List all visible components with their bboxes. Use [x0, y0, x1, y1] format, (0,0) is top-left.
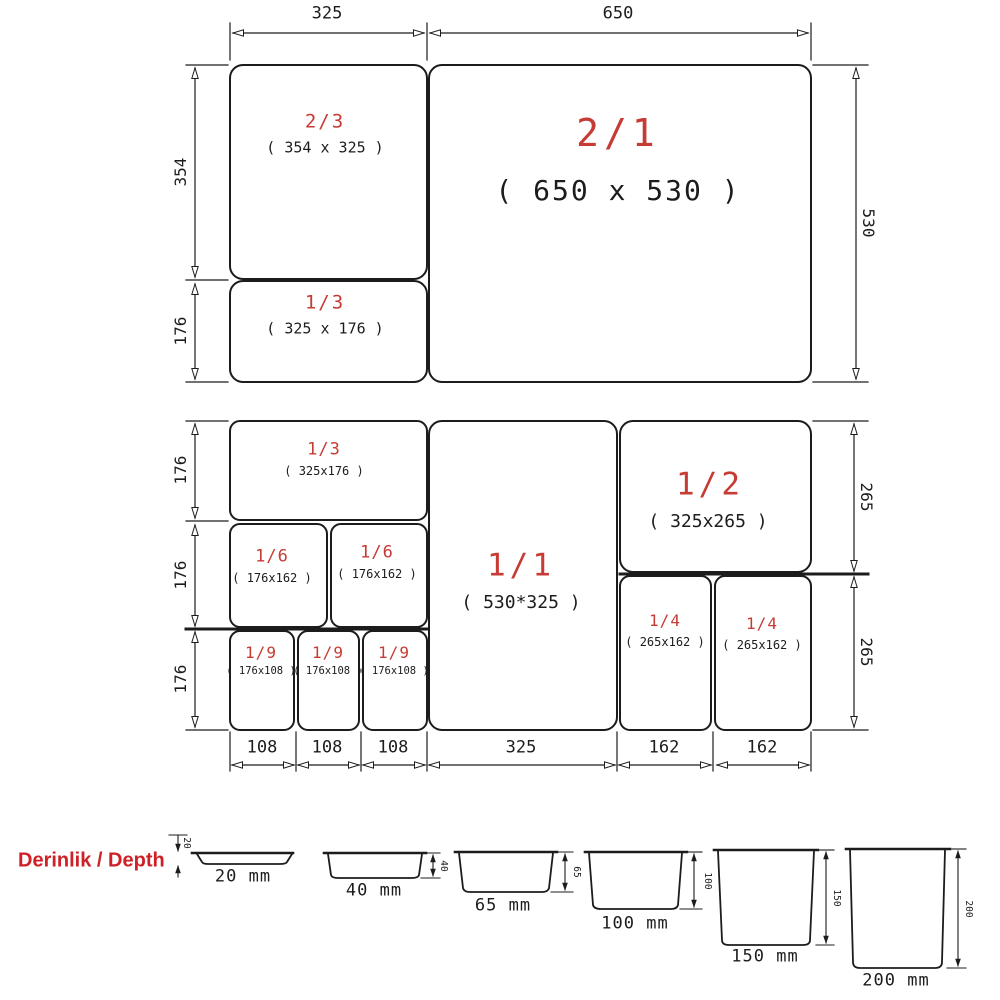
dim-label-top-325: 325	[312, 6, 343, 23]
depth-label-65mm: 65 mm	[475, 898, 531, 915]
pan-size-1-9-b: ( 176x108 )	[293, 666, 363, 677]
dim-label-bottom-108-b: 108	[312, 740, 343, 757]
pan-label-1-2: 1/2	[676, 470, 744, 501]
pan-size-1-9-a: ( 176x108 )	[226, 666, 296, 677]
pan-label-2-1: 2/1	[576, 114, 660, 152]
pan-label-1-3-bottom: 1/3	[307, 442, 341, 459]
depth-dim-200: 200	[963, 900, 973, 917]
depth-pan-200-body	[850, 850, 945, 968]
pan-size-1-9-c: ( 176x108 )	[359, 666, 429, 677]
pan-size-1-1: ( 530*325 )	[461, 594, 580, 612]
pan-label-1-3-top: 1/3	[305, 294, 345, 313]
dim-label-bottom-162-a: 162	[649, 740, 680, 757]
pan-label-1-1: 1/1	[487, 551, 555, 582]
dim-label-left-176-row2: 176	[173, 561, 189, 590]
dim-label-left-176: 176	[173, 317, 189, 346]
depth-label-100mm: 100 mm	[601, 916, 668, 933]
dim-label-left-176-row1: 176	[173, 456, 189, 485]
pan-label-1-9-b: 1/9	[312, 645, 344, 661]
dim-label-left-354: 354	[173, 158, 189, 187]
dim-label-bottom-325: 325	[506, 740, 537, 757]
pan-size-1-6-b: ( 176x162 )	[337, 568, 416, 580]
dim-label-bottom-162-b: 162	[747, 740, 778, 757]
pan-label-1-9-c: 1/9	[378, 645, 410, 661]
dim-label-bottom-108-c: 108	[378, 740, 409, 757]
depth-section-title: Derinlik / Depth	[18, 850, 165, 873]
depth-pan-40-body	[328, 854, 422, 878]
depth-dim-65: 65	[571, 866, 581, 877]
depth-label-150mm: 150 mm	[731, 949, 798, 966]
dim-label-left-176-row3: 176	[173, 665, 189, 694]
depth-pan-100-body	[589, 853, 682, 909]
depth-label-200mm: 200 mm	[862, 973, 929, 990]
pan-outline-2-3	[230, 65, 427, 279]
depth-dim-40: 40	[438, 860, 448, 871]
pan-size-1-3-bottom: ( 325x176 )	[284, 465, 363, 477]
pan-label-1-6-a: 1/6	[255, 549, 289, 566]
pan-size-1-2: ( 325x265 )	[648, 513, 767, 531]
pan-label-1-9-a: 1/9	[245, 645, 277, 661]
dim-label-right-265-upper: 265	[858, 483, 874, 512]
pan-label-1-4-b: 1/4	[746, 616, 778, 632]
pan-size-1-4-b: ( 265x162 )	[722, 639, 801, 651]
depth-pan-20-body	[197, 854, 292, 864]
depth-label-20mm: 20 mm	[215, 869, 271, 886]
pan-size-2-3: ( 354 x 325 )	[266, 141, 383, 156]
depth-dim-20: 20	[181, 837, 191, 848]
depth-pans	[169, 835, 966, 968]
pan-size-2-1: ( 650 x 530 )	[495, 177, 740, 205]
pan-outline-1-4-b	[715, 576, 811, 730]
gn-pan-size-diagram: 325 650 354 176 530 2/3 ( 354 x 325 ) 1/…	[0, 0, 1000, 1000]
pan-size-1-6-a: ( 176x162 )	[232, 572, 311, 584]
pan-label-1-6-b: 1/6	[360, 545, 394, 562]
pan-size-1-3-top: ( 325 x 176 )	[266, 322, 383, 337]
depth-pan-150-body	[718, 851, 814, 945]
pan-size-1-4-a: ( 265x162 )	[625, 636, 704, 648]
depth-label-40mm: 40 mm	[346, 883, 402, 900]
depth-dim-150: 150	[831, 889, 841, 906]
dim-label-right-265-lower: 265	[858, 638, 874, 667]
dim-label-top-650: 650	[603, 6, 634, 23]
depth-dim-100: 100	[702, 872, 712, 889]
depth-pan-65-body	[459, 853, 553, 892]
dim-label-right-530: 530	[860, 209, 876, 238]
dim-label-bottom-108-a: 108	[247, 740, 278, 757]
pan-label-1-4-a: 1/4	[649, 613, 681, 629]
pan-outline-1-4-a	[620, 576, 711, 730]
pan-label-2-3: 2/3	[305, 113, 345, 132]
